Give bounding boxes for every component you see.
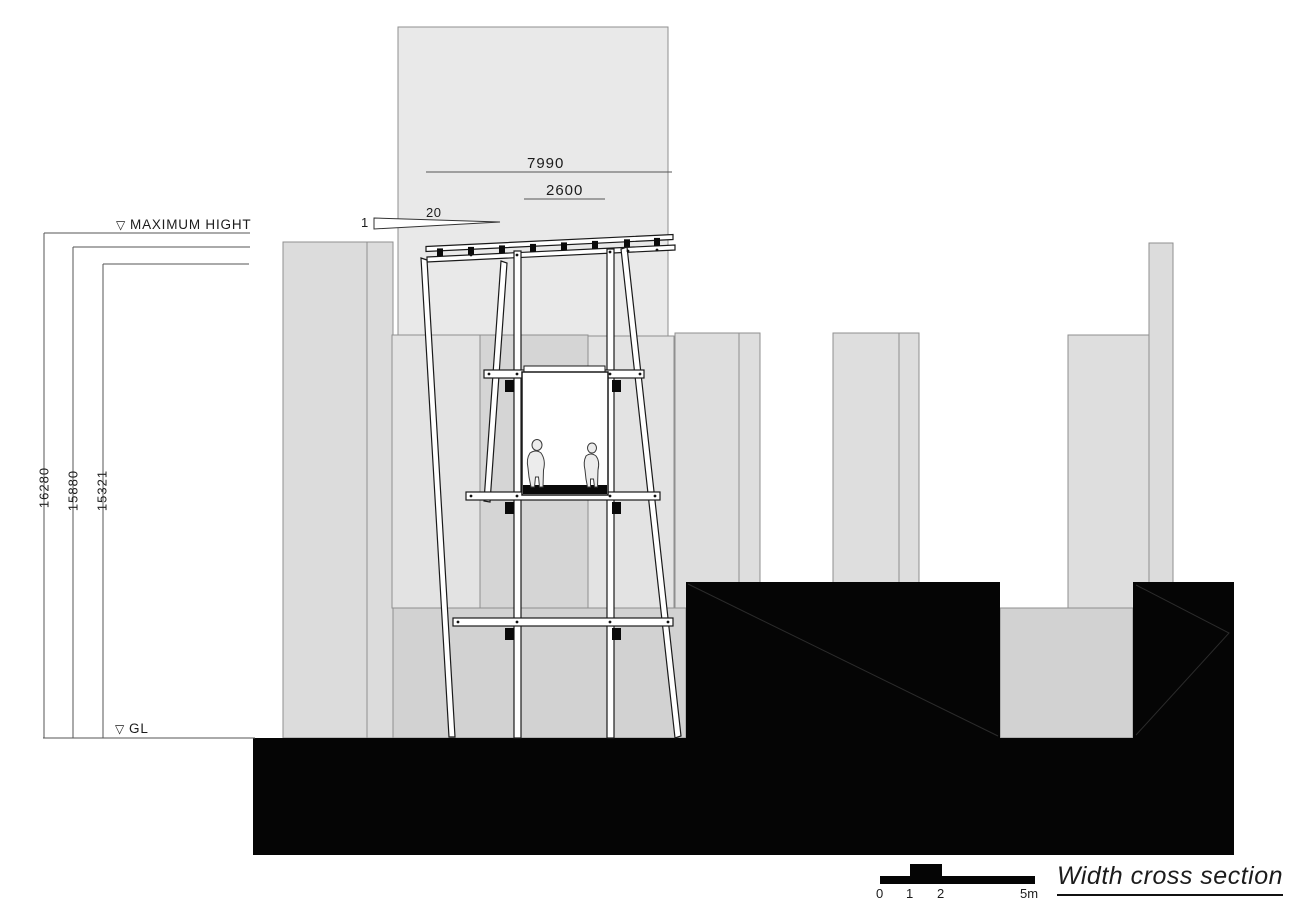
ground-level-label: ▽GL	[115, 721, 149, 736]
scale-tick-5m: 5m	[1020, 886, 1038, 901]
scale-tick-1: 1	[906, 886, 913, 901]
scale-seg-1-2	[910, 864, 942, 884]
vdim-text-15880: 15880	[66, 456, 81, 526]
scale-seg-0-1	[880, 876, 910, 884]
vdim-text-16280: 16280	[37, 453, 52, 523]
pillar-3	[1068, 335, 1149, 608]
ground-mass	[253, 738, 1234, 855]
platform-room	[522, 366, 608, 495]
scale-tick-2: 2	[937, 886, 944, 901]
width-cross-section-drawing: 7990 2600 20 1 ▽MAXIMUM HIGHT ▽GL 16280 …	[0, 0, 1300, 919]
slope-run-text: 20	[426, 205, 441, 220]
level-marker-icon: ▽	[116, 218, 126, 232]
dim-text-7990: 7990	[527, 155, 564, 172]
slope-rise-text: 1	[361, 215, 369, 230]
tall-thin-column	[1149, 243, 1173, 588]
pillar-1	[675, 333, 760, 608]
ground-level-label-text: GL	[129, 721, 149, 736]
scale-seg-2-5	[942, 876, 1035, 884]
right-lower-ground-strip	[1000, 608, 1133, 738]
max-height-label: ▽MAXIMUM HIGHT	[116, 217, 251, 232]
section-geometry	[0, 0, 1300, 919]
level-marker-icon: ▽	[115, 722, 125, 736]
ledger-rail-lower	[453, 618, 673, 626]
lower-ground-strip	[393, 608, 686, 738]
left-wall	[283, 242, 393, 738]
vdim-text-15321: 15321	[95, 456, 110, 526]
drawing-title: Width cross section	[1057, 862, 1283, 896]
scale-bar	[880, 864, 1035, 884]
pillar-2	[833, 333, 919, 608]
scale-tick-0: 0	[876, 886, 883, 901]
max-height-label-text: MAXIMUM HIGHT	[130, 217, 251, 232]
dim-text-2600: 2600	[546, 182, 583, 199]
